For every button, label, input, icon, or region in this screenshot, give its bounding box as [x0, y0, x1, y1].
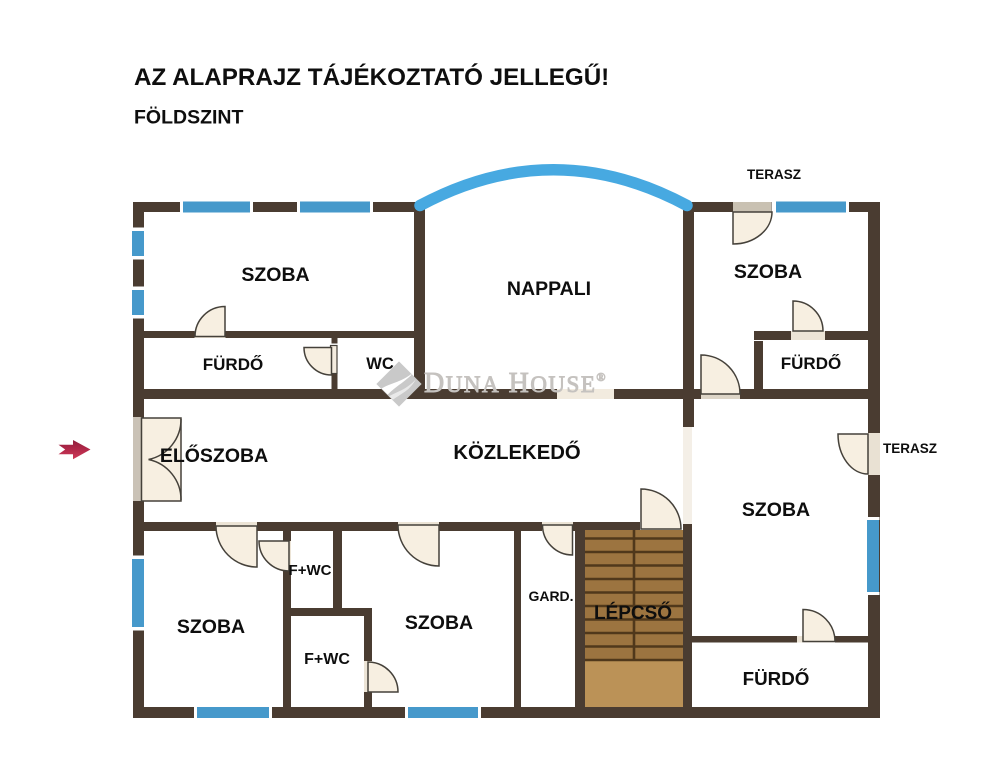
svg-text:FÖLDSZINT: FÖLDSZINT: [134, 106, 243, 129]
svg-text:SZOBA: SZOBA: [405, 612, 473, 634]
svg-text:NAPPALI: NAPPALI: [507, 278, 591, 300]
svg-text:FÜRDŐ: FÜRDŐ: [781, 354, 841, 373]
svg-text:LÉPCSŐ: LÉPCSŐ: [594, 602, 672, 624]
svg-text:FÜRDŐ: FÜRDŐ: [203, 355, 263, 374]
svg-text:SZOBA: SZOBA: [742, 499, 810, 521]
svg-text:AZ ALAPRAJZ TÁJÉKOZTATÓ JELLEG: AZ ALAPRAJZ TÁJÉKOZTATÓ JELLEGŰ!: [134, 63, 609, 91]
svg-text:DUNA HOUSE®: DUNA HOUSE®: [424, 368, 607, 399]
svg-text:SZOBA: SZOBA: [734, 261, 802, 283]
svg-text:GARD.: GARD.: [528, 588, 573, 604]
svg-text:ELŐSZOBA: ELŐSZOBA: [160, 444, 268, 467]
svg-text:TERASZ: TERASZ: [747, 167, 801, 182]
svg-text:WC: WC: [366, 355, 394, 373]
svg-text:SZOBA: SZOBA: [241, 264, 309, 286]
svg-text:TERASZ: TERASZ: [883, 441, 937, 456]
svg-text:SZOBA: SZOBA: [177, 616, 245, 638]
svg-text:FÜRDŐ: FÜRDŐ: [743, 668, 810, 689]
svg-text:F+WC: F+WC: [304, 651, 350, 668]
svg-text:F+WC: F+WC: [289, 562, 332, 579]
svg-text:KÖZLEKEDŐ: KÖZLEKEDŐ: [453, 441, 580, 464]
